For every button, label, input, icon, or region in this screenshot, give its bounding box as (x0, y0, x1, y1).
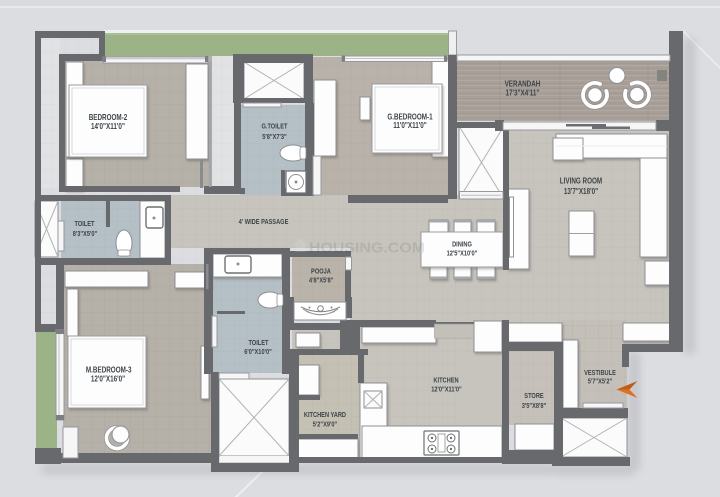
svg-text:KITCHEN YARD: KITCHEN YARD (304, 411, 346, 419)
svg-text:6'0"X10'0": 6'0"X10'0" (244, 348, 272, 356)
svg-text:LIVING ROOM: LIVING ROOM (560, 177, 602, 186)
svg-text:11'0"X11'0": 11'0"X11'0" (393, 121, 427, 130)
svg-text:VERANDAH: VERANDAH (505, 80, 541, 89)
svg-text:TOILET: TOILET (74, 220, 94, 228)
svg-text:POOJA: POOJA (311, 268, 331, 276)
svg-text:4'8"X5'8": 4'8"X5'8" (309, 277, 333, 285)
svg-text:12'0"X16'0": 12'0"X16'0" (91, 375, 125, 384)
svg-text:BEDROOM-2: BEDROOM-2 (89, 113, 128, 122)
svg-text:3'5"X8'8": 3'5"X8'8" (522, 402, 546, 410)
svg-text:13'7"X18'0": 13'7"X18'0" (564, 187, 598, 196)
svg-text:STORE: STORE (524, 392, 544, 400)
svg-text:12'0"X11'0": 12'0"X11'0" (431, 386, 461, 394)
svg-text:G.TOILET: G.TOILET (261, 123, 287, 131)
svg-text:TOILET: TOILET (248, 339, 268, 347)
svg-text:12'5"X10'0": 12'5"X10'0" (447, 250, 478, 258)
svg-text:17'3"X4'11": 17'3"X4'11" (506, 89, 540, 98)
svg-text:KITCHEN: KITCHEN (433, 377, 458, 385)
svg-text:HOUSING.COM: HOUSING.COM (309, 240, 425, 257)
svg-text:M.BEDROOM-3: M.BEDROOM-3 (86, 366, 132, 375)
svg-text:5'8"X7'3": 5'8"X7'3" (262, 133, 286, 141)
svg-text:8'3"X5'0": 8'3"X5'0" (73, 230, 97, 238)
svg-text:5'2"X9'0": 5'2"X9'0" (313, 421, 337, 429)
svg-text:DINING: DINING (452, 241, 472, 249)
svg-text:VESTIBULE: VESTIBULE (584, 369, 616, 377)
svg-text:4' WIDE PASSAGE: 4' WIDE PASSAGE (239, 218, 289, 226)
svg-text:14'0"X11'0": 14'0"X11'0" (91, 122, 125, 131)
svg-text:5'7"X5'2": 5'7"X5'2" (588, 378, 612, 386)
